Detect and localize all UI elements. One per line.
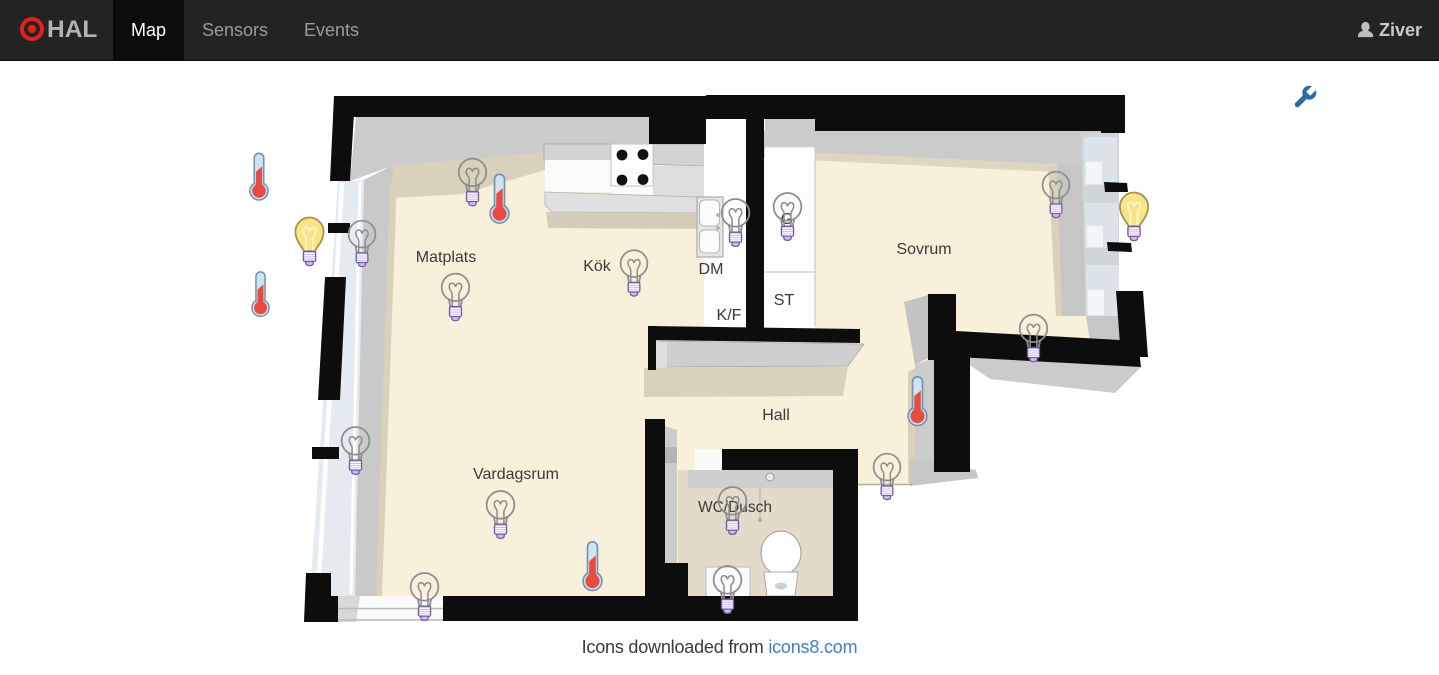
svg-text:Sovrum: Sovrum (896, 241, 951, 258)
svg-text:Matplats: Matplats (416, 249, 476, 266)
svg-text:Vardagsrum: Vardagsrum (473, 466, 559, 483)
svg-text:ST: ST (774, 292, 795, 309)
svg-text:DM: DM (699, 261, 724, 278)
svg-text:Hall: Hall (762, 407, 790, 424)
svg-text:K/F: K/F (717, 307, 742, 324)
svg-text:Kök: Kök (583, 258, 612, 275)
